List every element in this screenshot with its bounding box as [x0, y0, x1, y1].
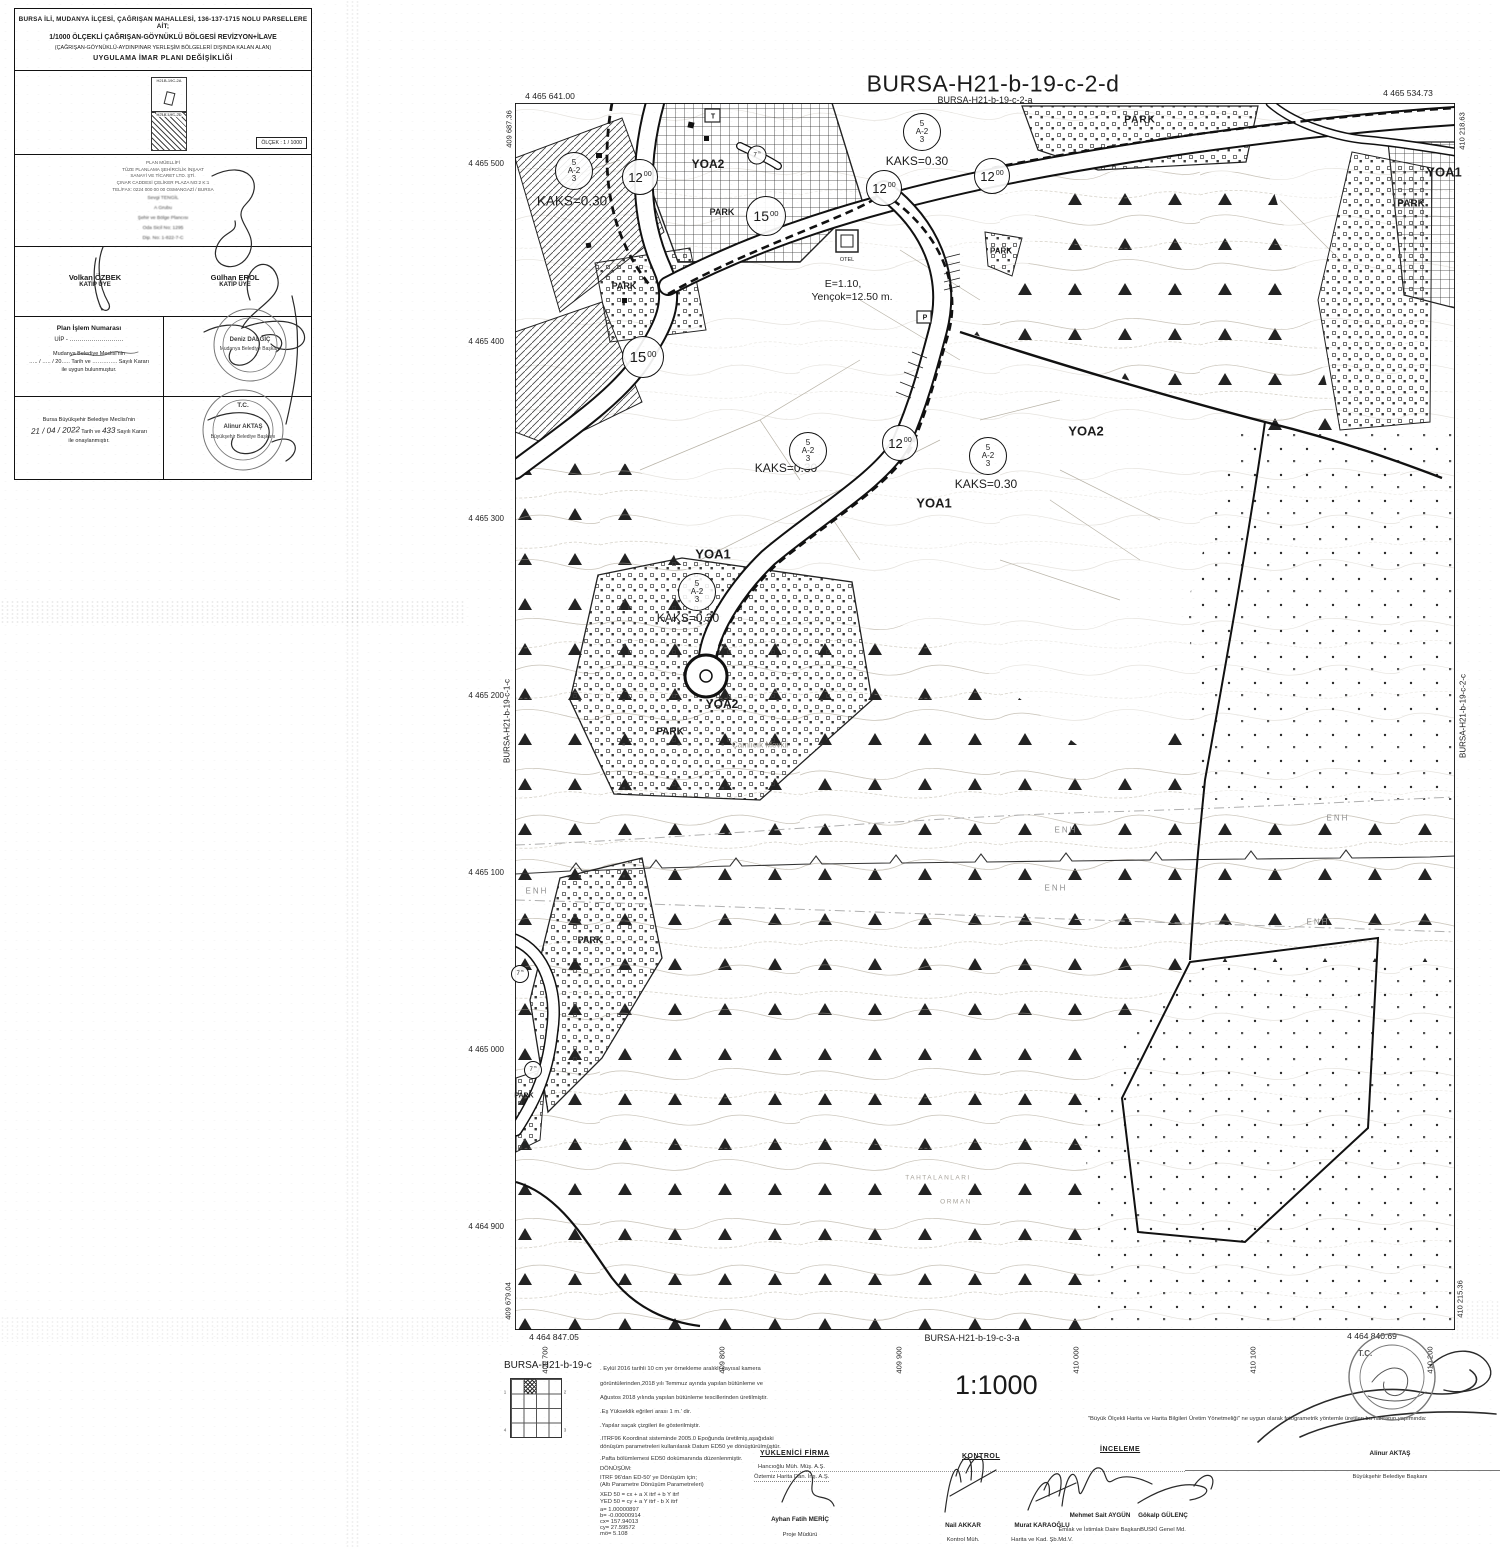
mudanya-decision-line: ….. / ….. / 20….. Tarih ve ………….. Sayılı…	[15, 359, 163, 365]
scan-artifact-strip	[345, 0, 361, 1547]
adjacent-sheet-bottom: BURSA-H21-b-19-c-3-a	[924, 1333, 1019, 1343]
author-stamp-line: ÇINAR CADDESİ ÇELİKER PLAZA NO:2 K:1	[15, 180, 311, 187]
approval-line: 21 / 04 / 2022 Tarih ve 433 Sayılı Karar…	[15, 426, 163, 435]
production-note-line: . Eylül 2016 tarihli 10 cm yer örnekleme…	[600, 1366, 761, 1372]
signer-title: Proje Müdürü	[783, 1532, 818, 1538]
legend-grid-number: 2	[564, 1390, 567, 1395]
legend-grid-number: 1	[504, 1390, 507, 1395]
approval-line: Bursa Büyükşehir Belediye Meclisi'nin	[15, 417, 163, 423]
mudanya-stamp-title: Mudanya Belediye Başkanı	[200, 346, 300, 352]
handwritten-number: 433	[102, 426, 116, 435]
author-stamp-line: SANAYİ VE TİCARET LTD. ŞTİ.	[15, 173, 311, 180]
grid-easting-label: 410 200	[1426, 1346, 1435, 1373]
corner-coordinate: 4 465 641.00	[525, 91, 575, 101]
plan-title-line: UYGULAMA İMAR PLANI DEĞİŞİKLİĞİ	[15, 55, 311, 62]
signer-name: Mehmet Sait AYGÜN	[1070, 1512, 1131, 1519]
author-name-line: Şehir ve Bölge Plancısı	[15, 216, 311, 223]
corner-coordinate: 409 687.36	[505, 110, 514, 148]
mudanya-stamp-name: Deniz DALGIÇ	[210, 337, 290, 343]
adjacent-sheet-right: BURSA-H21-b-19-c-2-c	[1459, 674, 1468, 758]
grid-northing-label: 4 464 900	[428, 1222, 504, 1231]
control-header: KONTROL	[962, 1453, 1000, 1460]
grid-northing-label: 4 465 000	[428, 1045, 504, 1054]
member-name: Volkan ÖZBEK	[35, 273, 155, 282]
signer-name: Gökalp GÜLENÇ	[1138, 1512, 1188, 1519]
production-note-line: dönüşüm parametreleri kullanılarak Datum…	[600, 1444, 781, 1450]
author-stamp-line: TEL/FAX: 0224 000 00 00 OSMANGAZİ / BURS…	[15, 187, 311, 194]
production-note-line: .ITRF96 Koordinat sisteminde 2005.0 Epoğ…	[600, 1436, 774, 1442]
approval-cell: Bursa Büyükşehir Belediye Meclisi'nin 21…	[15, 397, 164, 479]
plan-title-line: (ÇAĞRIŞAN-GÖYNÜKLÜ-AYDINPINAR YERLEŞİM B…	[15, 45, 311, 51]
scan-artifact-band	[0, 1316, 510, 1342]
author-name-line: Sevgi TENGİL	[15, 196, 311, 203]
member-role: KATİP ÜYE	[35, 282, 155, 288]
corner-coordinate: 410 218.63	[1458, 112, 1467, 150]
committee-member: Volkan ÖZBEK KATİP ÜYE	[35, 273, 155, 288]
grid-easting-label: 410 100	[1249, 1346, 1258, 1373]
signer-name: Alinur AKTAŞ	[1370, 1450, 1411, 1457]
committee-member: Gülhan EROL KATİP ÜYE	[175, 273, 295, 288]
bursa-stamp-name: Alinur AKTAŞ	[203, 424, 283, 430]
corner-coordinate: 410 215.36	[1456, 1280, 1465, 1318]
production-note-line: .Pafta bölümlemesi ED50 dokümanında düze…	[600, 1456, 742, 1462]
approval-text: Sayılı Kararı	[117, 429, 147, 435]
production-note-line: .Yapılar saçak çizgileri ile gösterilmiş…	[600, 1423, 700, 1429]
legend-index-grid	[510, 1378, 562, 1438]
corner-coordinate: 4 465 534.73	[1383, 88, 1433, 98]
grid-northing-label: 4 465 200	[428, 691, 504, 700]
production-note-line: (Altı Parametre Dönüşüm Parametreleri)	[600, 1482, 704, 1488]
scale-box: ÖLÇEK : 1 / 1000	[256, 137, 307, 149]
index-cell-label: H21B-19C-2D	[156, 112, 181, 117]
grid-easting-label: 410 000	[1072, 1346, 1081, 1373]
plan-number-row: Plan İşlem Numarası UİP - ……………………… Muda…	[15, 317, 311, 397]
production-note-line: DÖNÜŞÜM:	[600, 1466, 632, 1472]
approval-line: ile onaylanmıştır.	[15, 438, 163, 444]
signature-line	[770, 1471, 1185, 1472]
uip-number: UİP - ………………………	[15, 337, 163, 343]
adjacent-sheet-left: BURSA-H21-b-19-c-1-c	[503, 679, 512, 763]
scan-artifact-band	[1450, 1300, 1500, 1340]
parcel-outline-icon	[164, 91, 176, 106]
contractor-firm-line: Öztemiz Harita Dan. İnş. A.Ş.	[754, 1474, 829, 1482]
zoning-map	[515, 103, 1455, 1330]
production-note-line: görüntülerinden,2018 yılı Temmuz ayında …	[600, 1381, 763, 1387]
handwritten-date: 21 / 04 / 2022	[31, 425, 80, 436]
signer-name: Ayhan Fatih MERİÇ	[771, 1516, 829, 1523]
member-role: KATİP ÜYE	[175, 282, 295, 288]
production-note-line: YED 50 = cy + a Y itrf - b X itrf	[600, 1499, 677, 1505]
legend-sheet-label: BURSA-H21-b-19-c	[504, 1360, 592, 1371]
production-note-line: ITRF 96'dan ED-50' ye Dönüşüm için;	[600, 1475, 697, 1481]
legend-grid-shaded-cell	[524, 1379, 537, 1394]
member-name: Gülhan EROL	[175, 273, 295, 282]
review-header: İNCELEME	[1100, 1446, 1140, 1453]
production-note-line: XED 50 = cx + a X itrf + b Y itrf	[600, 1492, 679, 1498]
approval-text: Tarih ve	[81, 429, 100, 435]
plan-number-title: Plan İşlem Numarası	[15, 325, 163, 332]
legend-grid-number: 3	[564, 1428, 567, 1433]
corner-coordinate: 409 679.04	[504, 1282, 513, 1320]
contractor-firm-line: Hancıoğlu Müh. Müş. A.Ş.	[758, 1464, 825, 1470]
map-scale: 1:1000	[955, 1370, 1038, 1401]
bursa-stamp-title: Büyükşehir Belediye Başkanı	[193, 434, 293, 440]
plan-number-cell: Plan İşlem Numarası UİP - ……………………… Muda…	[15, 317, 164, 396]
author-name-line: Oda Sicil No: 1295	[15, 226, 311, 233]
legend-grid-number: 4	[504, 1428, 507, 1433]
production-note-line: .Eş Yükseklik eğrileri arası 1 m.' dir.	[600, 1409, 691, 1415]
scan-artifact-band	[0, 600, 465, 624]
production-method-note: "Büyük Ölçekli Harita ve Harita Bilgiler…	[1088, 1416, 1426, 1422]
author-name-line: Dip. No: 1-822-7-C	[15, 236, 311, 243]
committee-members-row: Volkan ÖZBEK KATİP ÜYE Gülhan EROL KATİP…	[15, 247, 311, 317]
official-stamp-tc: T.C.	[1358, 1349, 1372, 1358]
signer-name: Nail AKKAR	[945, 1522, 981, 1529]
signer-title: Harita ve Kad. Şb.Md.V.	[1011, 1537, 1073, 1543]
index-cell-a: H21B-19C-2A	[151, 77, 187, 113]
grid-northing-label: 4 465 100	[428, 868, 504, 877]
signer-title: BUSKİ Genel Md.	[1140, 1527, 1186, 1533]
signer-title: Emlak ve İstimlak Daire Başkanı	[1058, 1527, 1141, 1533]
mudanya-stamp-cell	[163, 317, 311, 396]
production-note-line: mö= 5.108	[600, 1531, 628, 1537]
title-block: BURSA İLİ, MUDANYA İLÇESİ, ÇAĞRIŞAN MAHA…	[14, 8, 312, 480]
corner-coordinate: 4 464 840.69	[1347, 1331, 1397, 1341]
grid-easting-label: 409 900	[895, 1346, 904, 1373]
plan-title-line: 1/1000 ÖLÇEKLİ ÇAĞRIŞAN-GÖYNÜKLÜ BÖLGESİ…	[15, 34, 311, 41]
grid-northing-label: 4 465 500	[428, 159, 504, 168]
contractor-header: YÜKLENİCİ FİRMA	[760, 1450, 829, 1457]
index-map-row: H21B-19C-2A H21B-19C-2D ÖLÇEK : 1 / 1000	[15, 71, 311, 155]
index-cell-b: H21B-19C-2D	[151, 111, 187, 151]
author-name-line: A Grubu	[15, 206, 311, 213]
scanned-zoning-plan-sheet: BURSA İLİ, MUDANYA İLÇESİ, ÇAĞRIŞAN MAHA…	[0, 0, 1500, 1547]
index-map: H21B-19C-2A H21B-19C-2D	[151, 77, 185, 149]
grid-northing-label: 4 465 300	[428, 514, 504, 523]
plan-title-header: BURSA İLİ, MUDANYA İLÇESİ, ÇAĞRIŞAN MAHA…	[15, 9, 311, 71]
index-cell-label: H21B-19C-2A	[157, 78, 182, 83]
corner-coordinate: 4 464 847.05	[529, 1332, 579, 1342]
plan-title-line: BURSA İLİ, MUDANYA İLÇESİ, ÇAĞRIŞAN MAHA…	[15, 16, 311, 30]
signer-title: Büyükşehir Belediye Başkanı	[1352, 1474, 1427, 1480]
signer-title: Kontrol Müh.	[947, 1537, 980, 1543]
grid-northing-label: 4 465 400	[428, 337, 504, 346]
mudanya-decision-line: ile uygun bulunmuştur.	[15, 367, 163, 373]
author-stamp-line: PLAN MÜELLİFİ	[15, 160, 311, 167]
map-sheet-title: BURSA-H21-b-19-c-2-d	[867, 71, 1120, 98]
mudanya-decision-line: Mudanya Belediye Meclisi'nin	[15, 351, 163, 357]
plan-author-stamp: PLAN MÜELLİFİTÜZE PLANLAMA ŞEHİRCİLİK İN…	[15, 155, 311, 247]
signature-line	[1185, 1470, 1500, 1471]
bursa-stamp-tc: T.C.	[223, 402, 263, 409]
production-note-line: Ağustos 2018 yılında yapılan bütünleme t…	[600, 1395, 768, 1401]
